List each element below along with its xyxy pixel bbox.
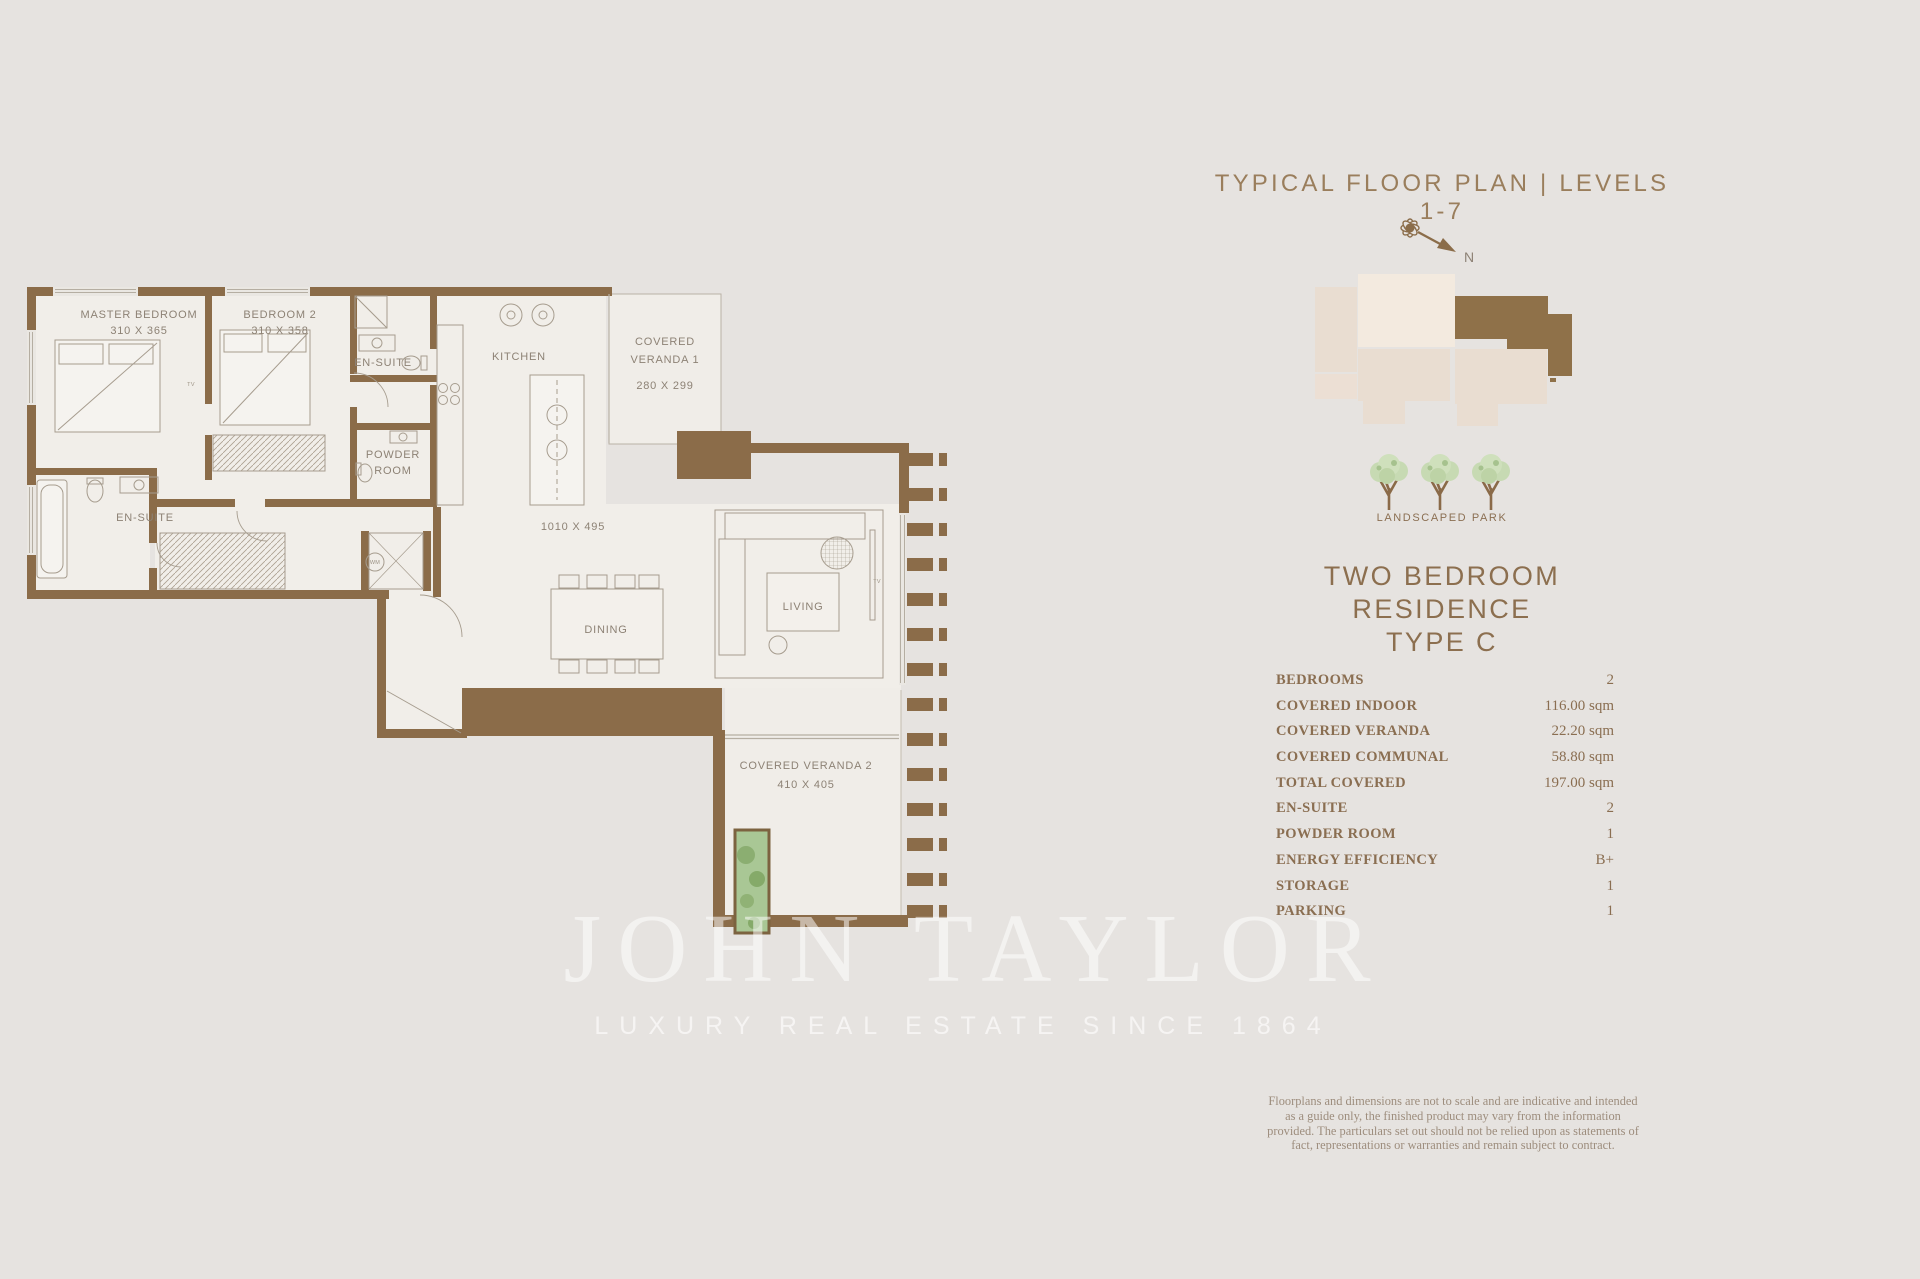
wm-label: WM	[370, 560, 380, 566]
room-label-ensuite-top: EN-SUITE	[354, 357, 412, 369]
floor-plan: MASTER BEDROOM 310 X 365 BEDROOM 2 310 X…	[25, 285, 970, 940]
spec-row-parking: PARKING 1	[1276, 903, 1614, 929]
spec-value: 1	[1607, 878, 1615, 895]
room-label-veranda1-1: COVERED	[635, 336, 695, 348]
spec-label: STORAGE	[1276, 878, 1349, 895]
room-dims-veranda2: 410 X 405	[777, 779, 834, 791]
balcony-fins	[907, 453, 947, 918]
spec-label: BEDROOMS	[1276, 672, 1364, 689]
spec-row-bedrooms: BEDROOMS 2	[1276, 672, 1614, 698]
spec-table: BEDROOMS 2 COVERED INDOOR 116.00 sqm COV…	[1276, 672, 1614, 929]
spec-value: 1	[1607, 826, 1615, 843]
spec-label: COVERED VERANDA	[1276, 723, 1430, 740]
spec-row-covered-veranda: COVERED VERANDA 22.20 sqm	[1276, 723, 1614, 749]
residence-title: TWO BEDROOM RESIDENCE TYPE C	[1240, 560, 1644, 659]
spec-row-energy-efficiency: ENERGY EFFICIENCY B+	[1276, 852, 1614, 878]
spec-value: B+	[1596, 852, 1614, 869]
room-label-bedroom-2: BEDROOM 2	[243, 309, 316, 321]
room-label-powder-1: POWDER	[366, 449, 420, 461]
room-label-master-bedroom: MASTER BEDROOM	[81, 309, 198, 321]
compass-north-label: N	[1464, 249, 1474, 265]
residence-title-line1: TWO BEDROOM RESIDENCE	[1240, 560, 1644, 626]
tv-label-living: TV	[873, 579, 881, 585]
spec-row-storage: STORAGE 1	[1276, 878, 1614, 904]
room-label-powder-2: ROOM	[374, 465, 411, 477]
room-label-ensuite-left: EN-SUITE	[116, 512, 174, 524]
watermark-tagline: LUXURY REAL ESTATE SINCE 1864	[563, 1012, 1363, 1041]
spec-label: COVERED INDOOR	[1276, 698, 1417, 715]
spec-value: 197.00 sqm	[1544, 775, 1614, 792]
spec-label: PARKING	[1276, 903, 1346, 920]
room-dims-bedroom-2: 310 X 358	[251, 325, 308, 337]
room-label-dining: DINING	[584, 624, 627, 636]
spec-label: ENERGY EFFICIENCY	[1276, 852, 1438, 869]
room-dims-master-bedroom: 310 X 365	[110, 325, 167, 337]
room-label-veranda2: COVERED VERANDA 2	[740, 760, 873, 772]
residence-title-line2: TYPE C	[1240, 626, 1644, 659]
spec-row-covered-indoor: COVERED INDOOR 116.00 sqm	[1276, 698, 1614, 724]
compass-icon: N	[1388, 206, 1498, 278]
room-dims-veranda1: 280 X 299	[636, 380, 693, 392]
tree-icon	[1370, 454, 1510, 510]
room-dims-open-plan: 1010 X 495	[541, 521, 605, 533]
spec-value: 22.20 sqm	[1551, 723, 1614, 740]
spec-label: POWDER ROOM	[1276, 826, 1396, 843]
room-label-kitchen: KITCHEN	[492, 351, 546, 363]
spec-row-powder-room: POWDER ROOM 1	[1276, 826, 1614, 852]
spec-value: 1	[1607, 903, 1615, 920]
brochure-page: MASTER BEDROOM 310 X 365 BEDROOM 2 310 X…	[0, 0, 1920, 1279]
landscaped-park-label: LANDSCAPED PARK	[1332, 512, 1552, 524]
spec-label: EN-SUITE	[1276, 800, 1348, 817]
spec-value: 2	[1607, 800, 1615, 817]
landscaped-park-trees	[1362, 454, 1522, 514]
spec-value: 116.00 sqm	[1545, 698, 1614, 715]
spec-row-ensuite: EN-SUITE 2	[1276, 800, 1614, 826]
spec-value: 2	[1607, 672, 1615, 689]
spec-value: 58.80 sqm	[1551, 749, 1614, 766]
spec-row-total-covered: TOTAL COVERED 197.00 sqm	[1276, 775, 1614, 801]
tv-label-master: TV	[187, 382, 195, 388]
spec-label: COVERED COMMUNAL	[1276, 749, 1449, 766]
key-plan	[1315, 274, 1577, 432]
spec-label: TOTAL COVERED	[1276, 775, 1406, 792]
disclaimer-text: Floorplans and dimensions are not to sca…	[1262, 1094, 1644, 1152]
room-label-living: LIVING	[783, 601, 824, 613]
room-label-veranda1-2: VERANDA 1	[631, 354, 700, 366]
spec-row-covered-communal: COVERED COMMUNAL 58.80 sqm	[1276, 749, 1614, 775]
